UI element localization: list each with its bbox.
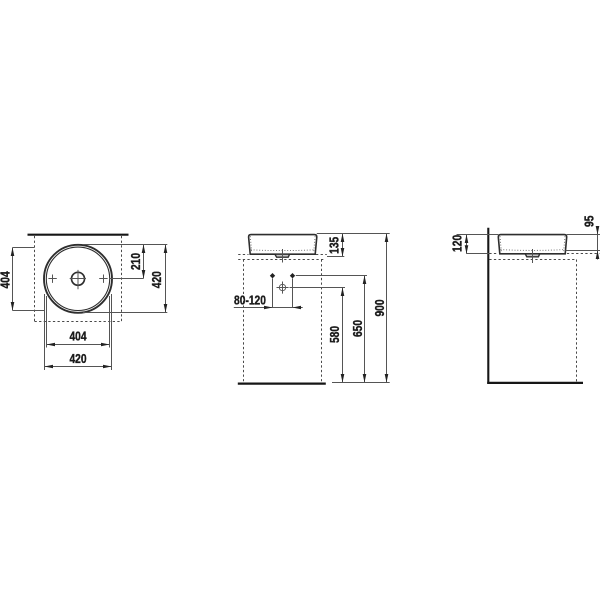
svg-text:135: 135: [329, 236, 342, 254]
svg-text:420: 420: [69, 353, 86, 366]
svg-text:95: 95: [584, 215, 597, 227]
svg-text:404: 404: [69, 331, 87, 344]
svg-text:210: 210: [130, 253, 143, 270]
svg-text:80-120: 80-120: [234, 295, 266, 308]
svg-text:650: 650: [352, 320, 365, 337]
svg-text:580: 580: [329, 326, 342, 343]
svg-text:900: 900: [374, 299, 387, 316]
svg-text:120: 120: [452, 235, 465, 252]
svg-text:420: 420: [151, 271, 164, 288]
svg-text:404: 404: [0, 271, 13, 289]
